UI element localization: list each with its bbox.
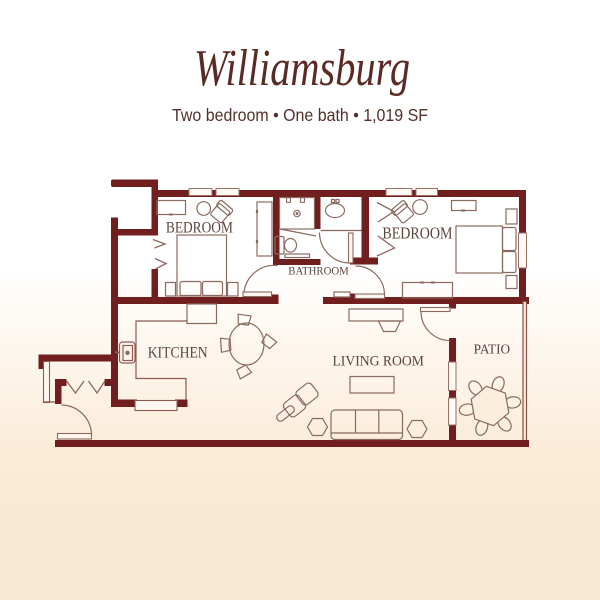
svg-text:LIVING ROOM: LIVING ROOM xyxy=(332,354,424,370)
svg-text:BEDROOM: BEDROOM xyxy=(166,220,233,237)
svg-text:Two bedroom • One bath • 1,019: Two bedroom • One bath • 1,019 SF xyxy=(172,105,428,125)
svg-text:BATHROOM: BATHROOM xyxy=(288,264,349,278)
svg-text:KITCHEN: KITCHEN xyxy=(148,345,208,362)
svg-text:BEDROOM: BEDROOM xyxy=(382,224,452,243)
svg-text:Williamsburg: Williamsburg xyxy=(194,40,410,97)
svg-text:PATIO: PATIO xyxy=(474,343,511,358)
